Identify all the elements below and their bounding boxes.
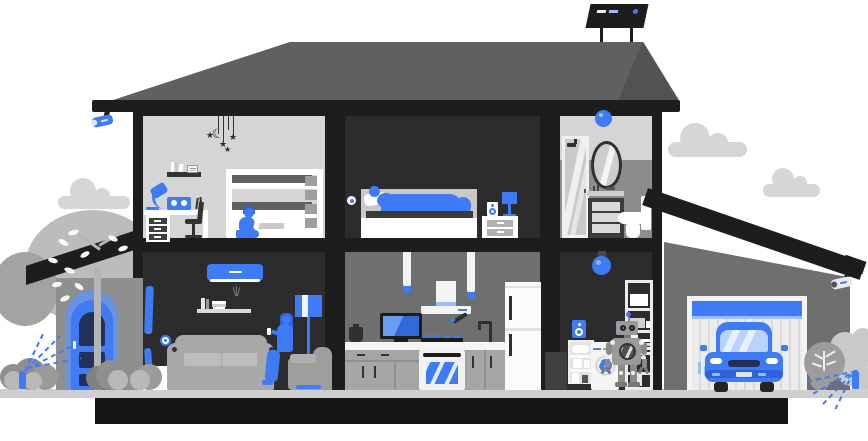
robot-pupil: [622, 327, 624, 329]
woman-head: [282, 315, 291, 324]
kettle: [349, 327, 363, 342]
door-handle: [362, 366, 364, 378]
storage-box: [630, 294, 648, 306]
tv-screen: [383, 316, 419, 336]
car-headlight: [766, 358, 778, 364]
camera-lens: [831, 281, 838, 288]
door-panel: [79, 312, 105, 346]
bush-light: [130, 370, 150, 390]
door-divider: [394, 362, 396, 390]
speaker-dot: [181, 200, 187, 206]
table-lamp-base: [503, 214, 516, 216]
speaker-dot: [491, 204, 494, 207]
vanity-item: [597, 184, 599, 191]
car-wheel: [760, 382, 774, 392]
car-windshield: [720, 330, 768, 352]
cloud-base: [668, 142, 747, 157]
oven-window: [426, 362, 458, 384]
woman-foot: [262, 380, 273, 385]
robot-chest-drum: [619, 343, 636, 360]
sensor-dot: [164, 339, 167, 342]
child-legs: [236, 230, 259, 238]
bulb-glint: [596, 260, 601, 265]
car-grille: [728, 360, 760, 367]
fridge-line: [505, 286, 541, 288]
shelf-board: [570, 355, 592, 358]
counter: [345, 342, 505, 350]
mobile-star-icon: ★: [206, 132, 214, 141]
sofa-base: [175, 366, 267, 390]
robot-body: [612, 338, 641, 365]
light-glint: [599, 113, 603, 117]
solar-panel-mark: [597, 10, 607, 13]
door-reflection: [698, 362, 701, 374]
bush-light: [108, 370, 128, 390]
fog-light: [712, 373, 720, 376]
bunk-bed-post: [317, 169, 323, 238]
bush-light: [852, 328, 868, 350]
solar-panel: [585, 4, 648, 28]
pendant-bulb: [403, 286, 411, 293]
drawer-handle: [497, 231, 504, 233]
cloud-base: [58, 196, 130, 209]
camera-stripe: [101, 119, 108, 122]
book: [201, 298, 205, 309]
smart-home-illustration: ☾ ★ ★ ★ ★: [0, 0, 868, 441]
armchair-cushion: [290, 354, 316, 363]
drawer-handle: [154, 228, 161, 230]
vase: [231, 296, 240, 309]
mirror-streak: [596, 141, 617, 189]
drawer-handle: [357, 354, 365, 356]
speaker-dot: [171, 200, 177, 206]
ac-display: [229, 271, 242, 273]
drawer: [592, 213, 620, 222]
smart-speaker: [167, 197, 191, 210]
robot-shoulder: [639, 340, 644, 345]
woman-body: [277, 324, 293, 352]
floor-lamp-shade: [295, 295, 322, 317]
pendant-lamp: [403, 252, 411, 286]
drawer-handle: [154, 236, 161, 238]
book: [206, 299, 209, 309]
frame-line: [190, 170, 195, 171]
faucet-body: [489, 323, 492, 342]
fridge-split: [505, 328, 541, 331]
solar-panel-leg: [630, 26, 633, 42]
robot-head: [616, 321, 638, 335]
solar-panel-leg: [600, 26, 603, 42]
fridge-handle: [509, 296, 512, 320]
sofa-button: [172, 347, 177, 352]
solar-panel-mark: [609, 10, 619, 13]
robot-knee: [631, 371, 635, 375]
robot-foot: [628, 382, 640, 387]
license-plate: [736, 372, 752, 377]
dark-bottle: [582, 375, 588, 383]
sofa-cushion: [184, 353, 221, 366]
speaker: [487, 202, 498, 216]
chair-base: [185, 235, 202, 238]
pendant-bulb: [467, 292, 475, 299]
small-box: [584, 360, 590, 368]
curtain: [144, 286, 154, 334]
fridge-handle: [509, 334, 512, 356]
shower-cabin: [562, 136, 589, 238]
pendant-lamp: [467, 252, 475, 292]
cloud-right-small: [763, 168, 820, 200]
book: [171, 162, 174, 172]
drawer-handle: [381, 354, 389, 356]
smart-ceiling-light: [595, 110, 612, 127]
foundation-shadow: [95, 398, 788, 424]
cabinet-right: [465, 350, 505, 390]
cloud-base: [763, 184, 820, 197]
sensor-dot: [350, 199, 354, 203]
paper-roll: [573, 359, 582, 368]
robot-shoulder: [610, 340, 615, 345]
hood-light: [458, 309, 467, 311]
cabinet-left: [345, 350, 419, 390]
drawer-line: [345, 360, 419, 362]
jug: [572, 373, 579, 383]
wall-shelf: [197, 309, 251, 313]
car-mirror: [700, 345, 707, 351]
speaker-dot: [578, 323, 581, 326]
roof: [107, 42, 680, 102]
cloud-right-large: [668, 123, 747, 165]
floor-lamp-base: [296, 385, 321, 389]
bed-mattress: [366, 211, 473, 218]
drawer: [592, 202, 620, 211]
frame-line: [190, 168, 196, 169]
robot-knee: [619, 371, 623, 375]
mobile-string: [228, 116, 229, 130]
lamp-shade-stripe: [302, 295, 308, 317]
towel-roll: [572, 345, 589, 353]
car-wheel: [714, 382, 728, 392]
phone: [267, 328, 271, 335]
toilet-bowl: [618, 212, 643, 224]
car-body: [705, 352, 783, 382]
bunk-bed-post: [226, 169, 232, 238]
drawer: [592, 224, 620, 233]
door-handle: [472, 356, 474, 368]
bed-base: [361, 218, 477, 238]
door-handle: [374, 366, 376, 378]
ground: [0, 389, 868, 398]
bunk-mattress-top: [232, 175, 312, 183]
door-handle: [490, 356, 492, 368]
door-divider: [484, 350, 486, 390]
photo-frame: [187, 165, 198, 173]
smart-bulb: [592, 256, 611, 275]
sofa-cushion: [222, 353, 259, 366]
mirror: [591, 141, 622, 189]
drawer-handle: [497, 222, 504, 224]
robot-foot: [615, 382, 627, 387]
camera-stripe: [840, 281, 847, 284]
oven-handle: [423, 353, 461, 357]
oven: [419, 350, 465, 390]
ac-vent: [210, 279, 260, 282]
air-conditioner: [207, 264, 263, 281]
shower-pipe: [574, 139, 577, 144]
robot-pupil: [631, 327, 633, 329]
mobile-star-icon: ★: [224, 146, 231, 154]
windshield-streak: [737, 330, 758, 352]
mobile-star-icon: ★: [229, 134, 237, 143]
car-mirror: [781, 345, 788, 351]
smart-sensor: [347, 196, 356, 205]
storage-box: [646, 321, 650, 328]
security-camera-left: [91, 114, 114, 128]
sprinkler-left: [19, 371, 26, 389]
shelf-board: [570, 369, 592, 372]
trash-bin: [545, 352, 567, 390]
garage-door-top: [692, 301, 802, 316]
bush-light: [24, 372, 42, 390]
solar-panel-light: [632, 9, 638, 14]
toilet-base: [626, 224, 640, 238]
washer-panel-light: [593, 348, 601, 350]
desk-leg: [203, 215, 208, 238]
desk-drawer-unit: [146, 215, 170, 242]
table-lamp-shade: [502, 192, 517, 204]
nightstand: [482, 216, 518, 238]
camera-lens: [91, 119, 98, 126]
fog-light: [758, 373, 766, 376]
faucet-tip: [478, 324, 481, 330]
tv-frame: [380, 313, 422, 339]
smart-speaker: [572, 320, 586, 338]
fridge: [505, 282, 541, 390]
drawer-handle: [154, 220, 161, 222]
table-lamp-stem: [508, 204, 511, 214]
child-body: [239, 217, 255, 231]
speaker-ring: [489, 208, 496, 215]
car-headlight: [710, 358, 722, 364]
vanity-top: [587, 191, 624, 196]
vanity-item: [606, 187, 615, 190]
sprinkler-right: [852, 370, 859, 389]
speaker-ring: [575, 328, 583, 336]
rack-shelf: [628, 308, 650, 311]
